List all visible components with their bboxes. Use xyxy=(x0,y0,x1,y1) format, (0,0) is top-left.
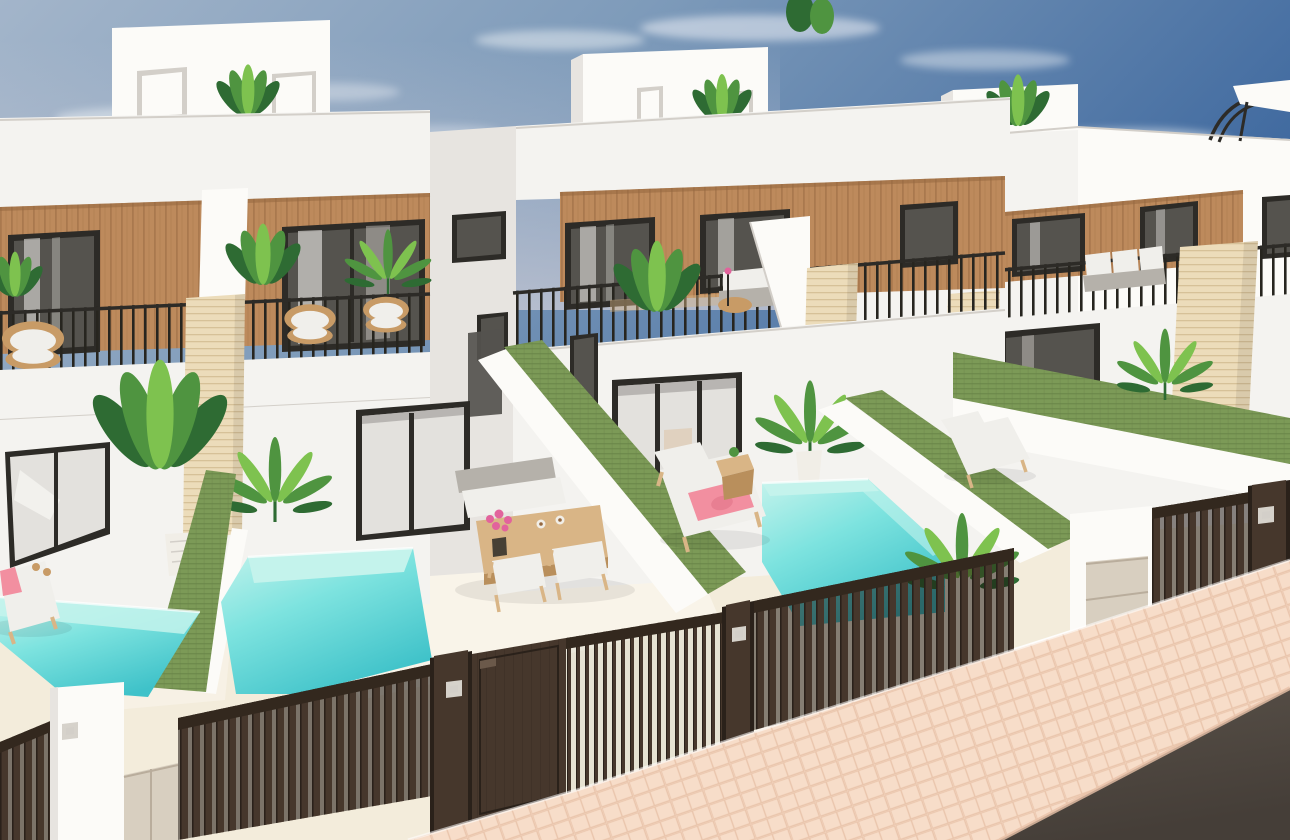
left-glass-door xyxy=(356,401,470,541)
keypad-center-right xyxy=(732,626,746,642)
villa-render: 3D render of a row of modern white terra… xyxy=(0,0,1290,840)
round-wicker-table xyxy=(718,297,752,313)
wicker-armchair-1 xyxy=(2,321,64,369)
render-canvas: 3D render of a row of modern white terra… xyxy=(0,0,1290,840)
wicker-armchair-3 xyxy=(363,297,409,333)
side-table-plant xyxy=(729,447,739,457)
palm-pot xyxy=(796,450,822,484)
white-gate-pillar-left xyxy=(50,682,124,840)
left-roof-door-2 xyxy=(272,71,316,118)
keypad-far-right xyxy=(1258,506,1274,524)
wicker-armchair-2 xyxy=(284,304,335,344)
link-window-1 xyxy=(452,211,506,263)
left-roof-door-1 xyxy=(137,67,187,120)
flower-vase xyxy=(492,537,507,557)
gate-pillar-center-left xyxy=(430,650,472,838)
keypad-left xyxy=(62,722,78,740)
stand-flower xyxy=(725,268,732,275)
keypad-center xyxy=(446,680,462,698)
middle-rooftop-box-side xyxy=(571,54,583,134)
utility-doors-left xyxy=(124,763,178,840)
white-chimney-column xyxy=(199,188,248,305)
